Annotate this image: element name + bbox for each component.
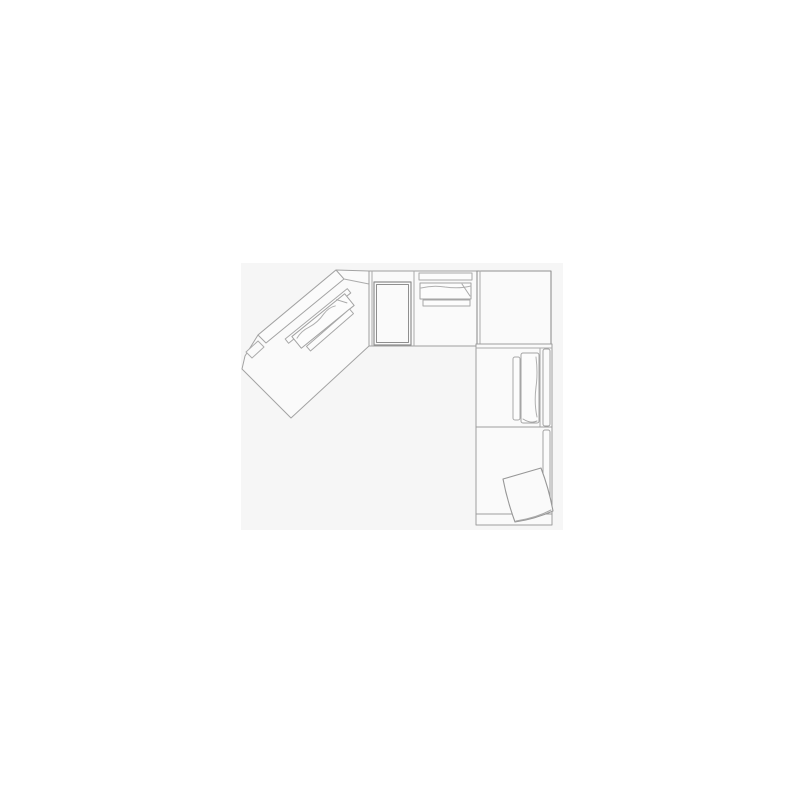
right-backrest-band-upper xyxy=(543,349,550,426)
right-cushion-strip xyxy=(513,357,520,420)
sofa-floorplan-svg xyxy=(0,0,800,800)
top-backrest-strip xyxy=(419,273,472,280)
top-lower-strip xyxy=(423,300,470,306)
console-outer xyxy=(374,282,411,345)
corner-unit-body xyxy=(477,271,551,344)
page: { "image": { "description": "Technical l… xyxy=(0,0,800,800)
product-drawing-stage xyxy=(0,0,800,800)
